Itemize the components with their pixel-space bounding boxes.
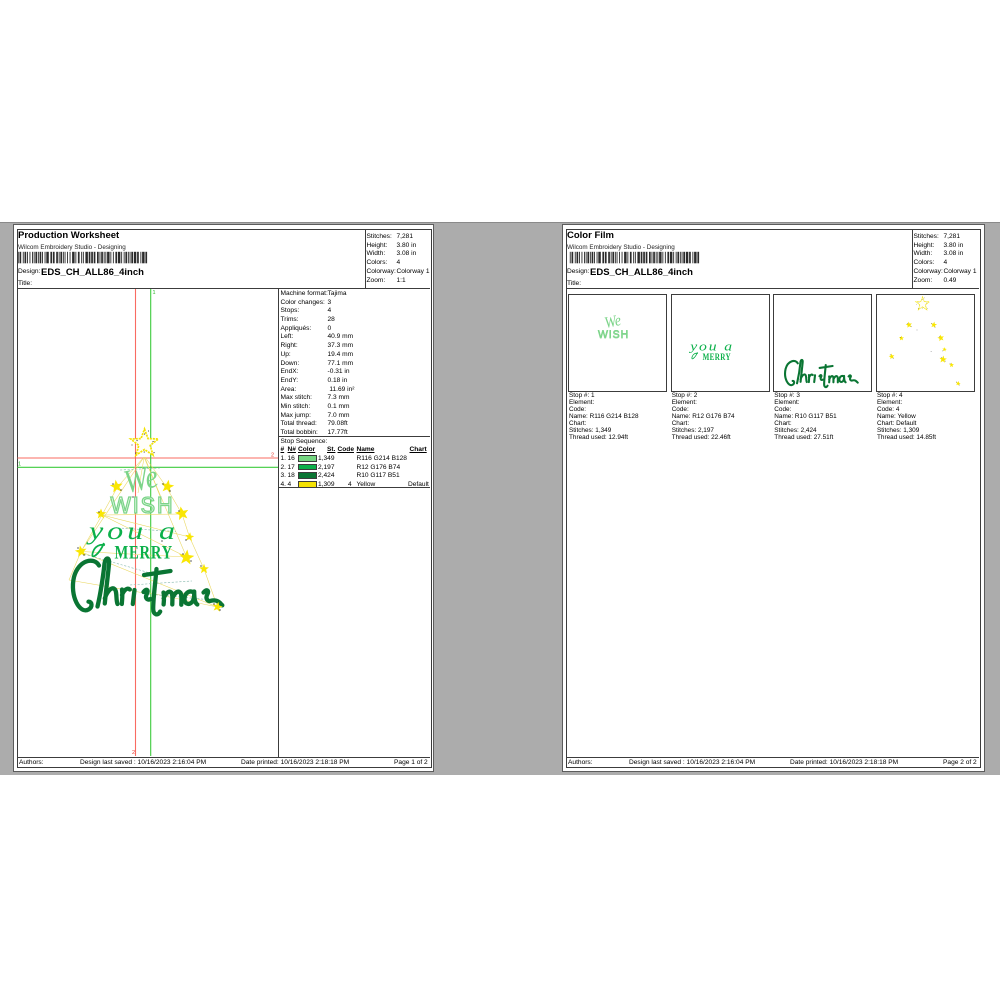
svg-text:1: 1: [18, 462, 21, 468]
svg-text:WISH: WISH: [598, 329, 629, 341]
svg-text:2: 2: [271, 452, 274, 458]
svg-text:2: 2: [132, 750, 135, 756]
svg-text:1: 1: [153, 290, 156, 296]
